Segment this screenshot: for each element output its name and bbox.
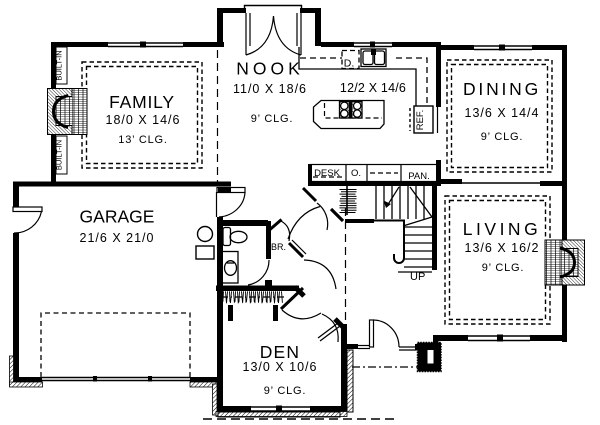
svg-text:DEN: DEN bbox=[260, 342, 301, 362]
svg-text:9’ CLG.: 9’ CLG. bbox=[251, 113, 293, 125]
svg-text:9’ CLG.: 9’ CLG. bbox=[482, 262, 524, 274]
svg-text:13’ CLG.: 13’ CLG. bbox=[118, 134, 167, 146]
svg-text:9’ CLG.: 9’ CLG. bbox=[481, 131, 523, 143]
svg-text:DESK: DESK bbox=[314, 168, 341, 179]
svg-text:11/0 X 18/6: 11/0 X 18/6 bbox=[233, 82, 307, 96]
svg-text:REF.: REF. bbox=[415, 110, 426, 131]
svg-text:PAN.: PAN. bbox=[408, 171, 429, 182]
svg-text:12/2 X 14/6: 12/2 X 14/6 bbox=[340, 81, 406, 95]
svg-text:UP: UP bbox=[410, 271, 425, 283]
svg-text:BUILT-IN: BUILT-IN bbox=[55, 140, 64, 170]
svg-text:BR.: BR. bbox=[271, 242, 286, 252]
svg-text:DINING: DINING bbox=[463, 79, 541, 99]
svg-text:13/6 X 14/4: 13/6 X 14/4 bbox=[465, 106, 540, 120]
svg-text:9’ CLG.: 9’ CLG. bbox=[264, 385, 306, 397]
svg-text:BUILT-IN: BUILT-IN bbox=[55, 50, 64, 80]
svg-text:O.: O. bbox=[351, 168, 361, 179]
svg-text:FAMILY: FAMILY bbox=[109, 92, 175, 112]
svg-text:13/6 X 16/2: 13/6 X 16/2 bbox=[465, 241, 540, 255]
svg-text:LIVING: LIVING bbox=[463, 219, 541, 239]
svg-text:21/6 X 21/0: 21/6 X 21/0 bbox=[80, 231, 155, 245]
svg-text:13/0 X 10/6: 13/0 X 10/6 bbox=[243, 360, 318, 374]
svg-text:18/0 X 14/6: 18/0 X 14/6 bbox=[106, 113, 181, 127]
svg-text:NOOK: NOOK bbox=[236, 59, 304, 79]
svg-text:GARAGE: GARAGE bbox=[80, 207, 155, 227]
svg-text:D.: D. bbox=[344, 58, 355, 70]
